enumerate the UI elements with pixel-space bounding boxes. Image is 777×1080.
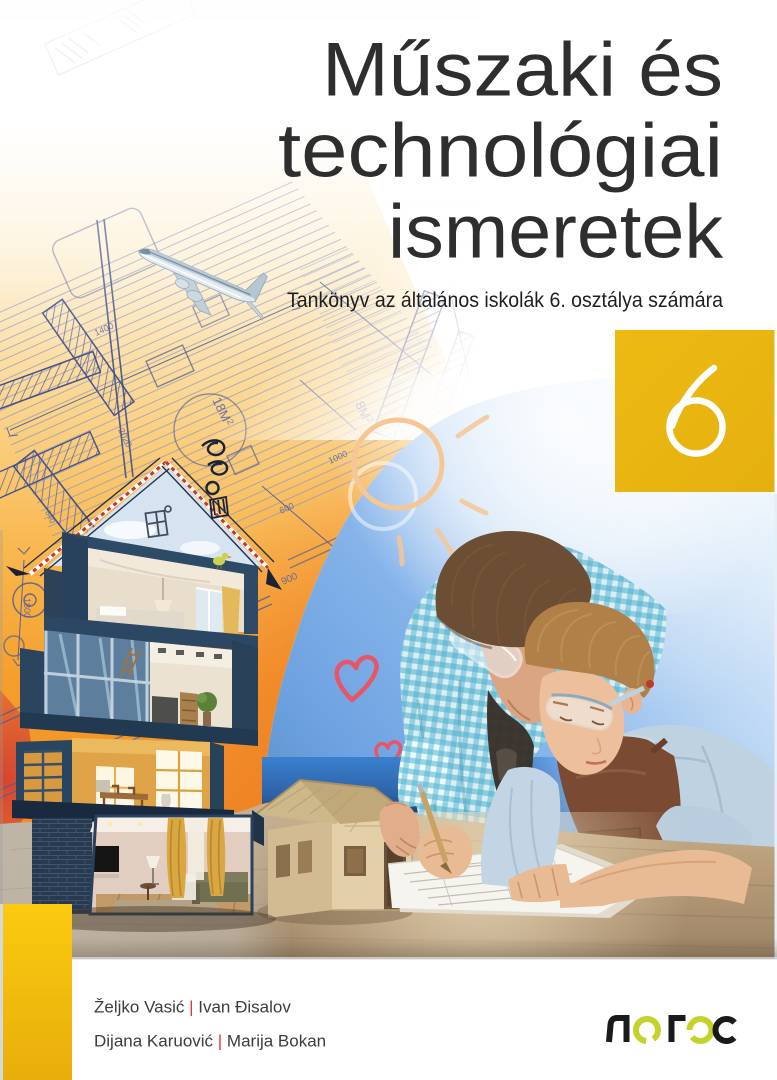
svg-text:Željko Vasić | Ivan Đisalov: Željko Vasić | Ivan Đisalov: [94, 998, 291, 1017]
svg-text:Dijana Karuović | Marija Bok: Dijana Karuović | Marija Bokan: [94, 1032, 326, 1051]
svg-text:technológiai: technológiai: [278, 109, 723, 194]
svg-text:Tankönyv az általános iskolák: Tankönyv az általános iskolák 6. osztály…: [287, 288, 723, 312]
svg-text:1800: 1800: [22, 598, 32, 618]
svg-text:Műszaki és: Műszaki és: [322, 28, 723, 113]
svg-text:ismeretek: ismeretek: [388, 190, 724, 275]
